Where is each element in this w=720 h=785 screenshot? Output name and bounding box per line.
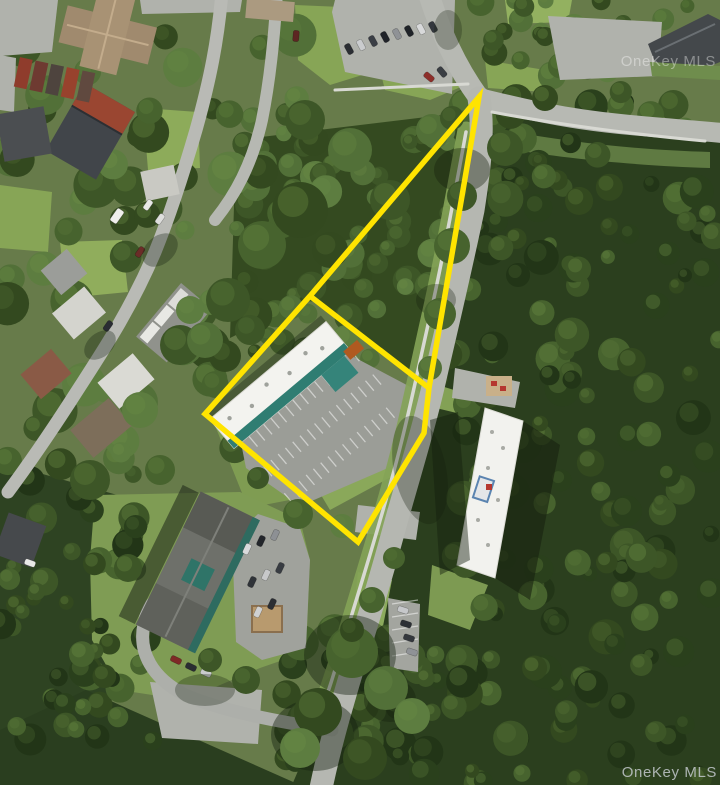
tree-highlight	[497, 723, 516, 742]
tree-highlight	[534, 155, 542, 163]
tree-highlight	[684, 367, 693, 376]
tree-highlight	[694, 261, 710, 277]
tree-highlight	[549, 615, 559, 625]
tree-highlight	[155, 26, 169, 40]
tree-highlight	[659, 244, 672, 257]
tree-highlight	[484, 652, 494, 662]
tree-highlight	[167, 51, 189, 73]
tree-highlight	[612, 83, 624, 95]
tree-highlight	[419, 116, 437, 134]
tree-highlight	[527, 243, 546, 262]
tree-highlight	[679, 269, 687, 277]
tree-highlight	[606, 635, 618, 647]
watermark-top-right: OneKey MLS	[621, 53, 716, 70]
tree-highlight	[701, 207, 710, 216]
tree-highlight	[362, 589, 376, 603]
tree-highlight	[219, 102, 234, 117]
tree-highlight	[126, 395, 146, 415]
tree-highlight	[381, 241, 389, 249]
tree-highlight	[580, 451, 595, 466]
tree-highlight	[275, 682, 291, 698]
tree-highlight	[700, 581, 716, 597]
tree-highlight	[679, 213, 690, 224]
tree-highlight	[148, 457, 165, 474]
satellite-image: OneKey MLS OneKey MLS	[0, 0, 720, 785]
tree-highlight	[29, 505, 46, 522]
tree-highlight	[654, 10, 666, 22]
tree-highlight	[622, 226, 633, 237]
tree-highlight	[281, 155, 294, 168]
tree-highlight	[614, 498, 631, 515]
tree-highlight	[57, 220, 72, 235]
tree-highlight	[562, 134, 573, 145]
tree-highlight	[8, 597, 19, 608]
tree-highlight	[139, 99, 154, 114]
tree-highlight	[534, 417, 543, 426]
tree-highlight	[636, 375, 653, 392]
tree-highlight	[491, 237, 505, 251]
tree-highlight	[252, 37, 266, 51]
tree-highlight	[525, 657, 539, 671]
tree-highlight	[316, 235, 336, 255]
tree-highlight	[660, 466, 672, 478]
tree-highlight	[347, 739, 371, 763]
tree-highlight	[508, 265, 521, 278]
tree-highlight	[581, 389, 590, 398]
tree-highlight	[504, 168, 516, 180]
tree-highlight	[634, 606, 649, 621]
tree-highlight	[249, 469, 261, 481]
tree-highlight	[51, 669, 61, 679]
tree-highlight	[682, 0, 690, 8]
tree-highlight	[568, 258, 582, 272]
tree-highlight	[299, 692, 325, 718]
tree-highlight	[515, 766, 524, 775]
tree-highlight	[661, 592, 671, 602]
tree-highlight	[639, 424, 653, 438]
tree-highlight	[385, 549, 397, 561]
tree-highlight	[81, 619, 90, 628]
tree-highlight	[534, 166, 547, 179]
tree-highlight	[95, 666, 108, 679]
tree-highlight	[286, 501, 303, 518]
tree-highlight	[9, 718, 19, 728]
tree-highlight	[74, 463, 96, 485]
tree-highlight	[557, 702, 569, 714]
tree-highlight	[527, 196, 542, 211]
tree-highlight	[212, 155, 237, 180]
tree-highlight	[332, 131, 356, 155]
tree-highlight	[513, 53, 523, 63]
tree-highlight	[26, 417, 40, 431]
tree-highlight	[578, 92, 596, 110]
tree-highlight	[640, 103, 655, 118]
tree-highlight	[69, 722, 78, 731]
tree-highlight	[110, 708, 121, 719]
tree-highlight	[466, 765, 474, 773]
tree-highlight	[579, 429, 589, 439]
tree-highlight	[33, 570, 48, 585]
tree-highlight	[386, 730, 404, 748]
tree-highlight	[449, 668, 467, 686]
tree-highlight	[65, 544, 75, 554]
tree-highlight	[281, 297, 294, 310]
tree-highlight	[610, 743, 625, 758]
tree-highlight	[568, 771, 580, 783]
tree-highlight	[362, 350, 373, 361]
tree-highlight	[537, 28, 548, 39]
tree-highlight	[568, 189, 583, 204]
tree-highlight	[243, 225, 269, 251]
tree-highlight	[620, 350, 636, 366]
tree-highlight	[204, 373, 219, 388]
tree-highlight	[200, 650, 213, 663]
tree-highlight	[599, 176, 614, 191]
tree-highlight	[398, 701, 418, 721]
tree-highlight	[356, 280, 367, 291]
tree-highlight	[428, 647, 438, 657]
tree-highlight	[399, 279, 408, 288]
tree-highlight	[48, 451, 65, 468]
tree-highlight	[369, 301, 379, 311]
tree-highlight	[442, 108, 455, 121]
tree-highlight	[645, 177, 654, 186]
tree-highlight	[243, 109, 257, 123]
tree-highlight	[238, 317, 255, 334]
tree-highlight	[249, 345, 257, 353]
tree-highlight	[1, 570, 13, 582]
tree-highlight	[541, 367, 552, 378]
tree-highlight	[449, 647, 467, 665]
tree-highlight	[287, 88, 300, 101]
plaza-top-right	[548, 16, 662, 80]
tree-highlight	[677, 716, 688, 727]
tree-highlight	[389, 226, 402, 239]
tree-highlight	[444, 696, 458, 710]
tree-highlight	[632, 655, 644, 667]
tree-highlight	[491, 133, 511, 153]
tree-highlight	[145, 733, 155, 743]
aerial-photo: OneKey MLS OneKey MLS	[0, 0, 720, 785]
tree-highlight	[646, 295, 660, 309]
tree-highlight	[231, 222, 239, 230]
tree-highlight	[17, 606, 25, 614]
tree-highlight	[578, 673, 596, 691]
car	[293, 30, 300, 41]
tree-highlight	[179, 298, 194, 313]
tree-highlight	[587, 144, 601, 158]
tree-highlight	[177, 222, 188, 233]
tree-highlight	[558, 320, 577, 339]
tree-highlight	[412, 761, 429, 778]
tree-highlight	[368, 669, 392, 693]
tree-highlight	[647, 723, 659, 735]
tree-highlight	[210, 281, 234, 305]
tree-highlight	[414, 738, 432, 756]
tree-highlight	[620, 425, 635, 440]
tree-highlight	[670, 279, 678, 287]
tree-highlight	[661, 92, 678, 109]
tree-highlight	[593, 483, 604, 494]
tree-highlight	[113, 444, 124, 455]
tree-highlight	[56, 695, 68, 707]
tree-highlight	[481, 334, 497, 350]
tree-highlight	[655, 496, 664, 505]
tree-highlight	[369, 254, 381, 266]
tree-highlight	[611, 694, 625, 708]
tree-highlight	[85, 554, 98, 567]
tree-highlight	[683, 177, 702, 196]
tree-highlight	[235, 134, 249, 148]
tree-highlight	[695, 442, 713, 460]
tree-highlight	[278, 186, 309, 217]
tree-highlight	[601, 340, 619, 358]
tree-highlight	[704, 224, 719, 239]
tree-highlight	[614, 582, 629, 597]
tree-highlight	[535, 87, 549, 101]
tree-highlight	[284, 731, 306, 753]
tree-highlight	[393, 748, 403, 758]
tree-highlight	[420, 241, 436, 257]
tree-highlight	[8, 560, 16, 568]
tree-highlight	[666, 639, 683, 656]
tree-highlight	[567, 551, 581, 565]
tree-highlight	[277, 127, 286, 136]
house	[0, 106, 52, 162]
tree-highlight	[473, 596, 488, 611]
tree-highlight	[72, 643, 86, 657]
tree-highlight	[532, 302, 546, 316]
tree-highlight	[404, 135, 412, 143]
tree-highlight	[564, 372, 574, 382]
tree-highlight	[419, 670, 429, 680]
tree-highlight	[126, 517, 139, 530]
tree-highlight	[289, 103, 311, 125]
watermark-bottom-right: OneKey MLS	[622, 764, 717, 781]
tree-highlight	[191, 325, 211, 345]
tree-highlight	[539, 344, 558, 363]
tree-highlight	[705, 527, 714, 536]
tree-highlight	[117, 556, 132, 571]
tree-highlight	[679, 403, 698, 422]
patio	[486, 376, 512, 396]
tree-highlight	[602, 251, 610, 259]
tree-highlight	[342, 620, 355, 633]
tree-highlight	[235, 668, 250, 683]
tree-highlight	[602, 219, 612, 229]
tree-highlight	[87, 726, 100, 739]
tree-highlight	[485, 31, 496, 42]
tree-highlight	[491, 183, 511, 203]
tree-highlight	[629, 544, 646, 561]
tree-highlight	[516, 177, 524, 185]
tree-highlight	[29, 584, 39, 594]
tree-highlight	[113, 243, 131, 261]
tree-highlight	[56, 714, 70, 728]
tree-highlight	[164, 328, 186, 350]
tree-highlight	[598, 553, 610, 565]
tree-highlight	[76, 700, 85, 709]
tree-highlight	[101, 635, 113, 647]
tree-highlight	[60, 596, 68, 604]
